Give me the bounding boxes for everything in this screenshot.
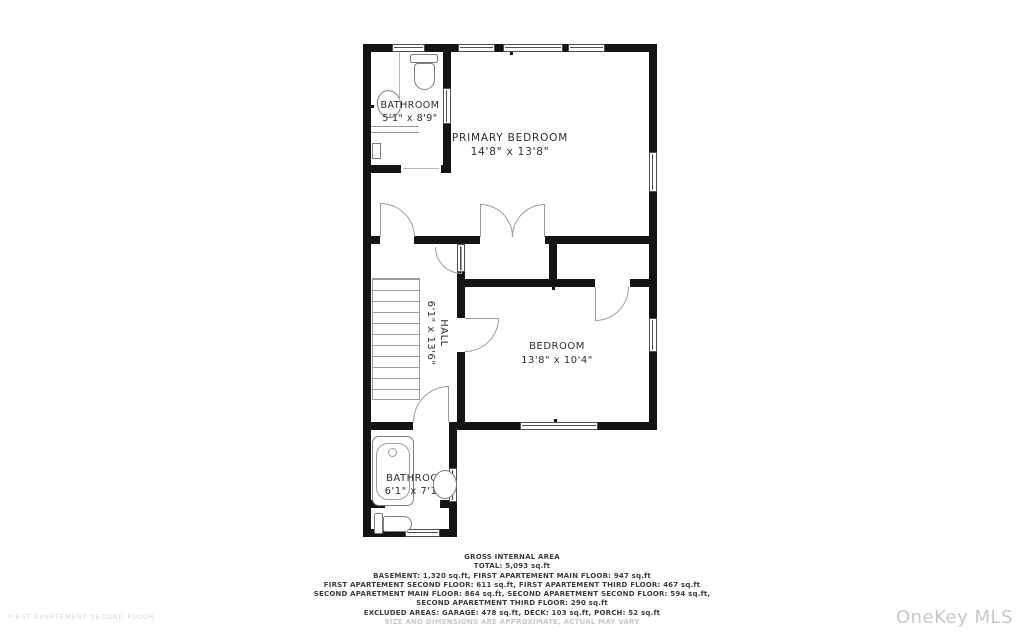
wall-divider-b: [457, 352, 465, 430]
wall-bottom-a: [363, 422, 413, 430]
watermark-onekey-mls: OneKey MLS: [896, 607, 1013, 628]
area-summary-title: GROSS INTERNAL AREA: [0, 553, 1024, 562]
room-dims: 5'1" x 8'9": [363, 112, 457, 125]
door-arc-closet: [595, 287, 629, 321]
sliding-door-track: [403, 168, 439, 169]
door-arc: [380, 203, 415, 237]
toilet-tank-fixture: [410, 54, 438, 63]
toilet-tank-fixture: [374, 513, 383, 534]
dimension-dot: [510, 52, 513, 55]
dimension-dot: [552, 287, 555, 290]
room-label-bathroom-top: BATHROOM 5'1" x 8'9": [363, 99, 457, 125]
room-name: BEDROOM: [495, 340, 619, 354]
window: [649, 152, 657, 192]
wall-bedroom-top-a: [465, 279, 595, 287]
floorplan-page: BATHROOM 5'1" x 8'9" PRIMARY BEDROOM 14'…: [0, 0, 1024, 640]
watermark-floor-name: FIRST APARTEMENT SECOND FLOOR: [8, 613, 154, 621]
window: [568, 44, 605, 52]
window: [405, 529, 440, 537]
window: [392, 44, 425, 52]
room-dims: 6'1" x 13'6": [424, 301, 437, 366]
room-label-primary-bedroom: PRIMARY BEDROOM 14'8" x 13'8": [403, 131, 617, 159]
room-name: BATHROOM: [363, 99, 457, 112]
area-summary-line: TOTAL: 5,093 sq.ft: [0, 562, 1024, 571]
wall-middle-c: [545, 236, 657, 244]
shower-line: [371, 126, 419, 127]
wall-divider-a: [457, 272, 465, 318]
door-arc-double-left: [480, 204, 513, 237]
window: [520, 422, 598, 430]
room-label-hall: HALL 6'1" x 13'6": [424, 301, 450, 366]
room-name: PRIMARY BEDROOM: [403, 131, 617, 145]
window: [649, 318, 657, 352]
area-summary-line: SECOND APARETMENT THIRD FLOOR: 290 sq.ft: [0, 599, 1024, 608]
area-summary-line: BASEMENT: 1,320 sq.ft, FIRST APARTEMENT …: [0, 572, 1024, 581]
staircase: [372, 278, 420, 400]
room-dims: 13'8" x 10'4": [495, 354, 619, 368]
sink-fixture: [433, 470, 457, 499]
wall-bathroom1-bottom-a: [363, 165, 401, 173]
radiator-fixture: [372, 143, 381, 159]
door-arc-double-right: [512, 204, 545, 237]
room-name: HALL: [437, 301, 450, 366]
room-label-bedroom: BEDROOM 13'8" x 10'4": [495, 340, 619, 368]
door-arc: [435, 247, 462, 274]
bathtub-drain: [388, 448, 397, 457]
wall-middle-b: [414, 236, 480, 244]
room-dims: 14'8" x 13'8": [403, 145, 617, 159]
partition-line: [399, 52, 400, 102]
wall-bathroom1-bottom-b: [441, 165, 451, 173]
window: [503, 44, 563, 52]
wall-bedroom-top-b: [630, 279, 657, 287]
dimension-dot: [554, 419, 557, 422]
area-summary-line: SECOND APARETMENT MAIN FLOOR: 864 sq.ft,…: [0, 590, 1024, 599]
door-arc-bedroom: [465, 318, 499, 352]
floor-plan: BATHROOM 5'1" x 8'9" PRIMARY BEDROOM 14'…: [363, 44, 657, 537]
wall-middle-a: [363, 236, 380, 244]
toilet-bowl-fixture: [383, 516, 412, 532]
toilet-bowl-fixture: [414, 63, 435, 90]
window: [458, 44, 495, 52]
area-summary-line: FIRST APARTEMENT SECOND FLOOR: 611 sq.ft…: [0, 581, 1024, 590]
